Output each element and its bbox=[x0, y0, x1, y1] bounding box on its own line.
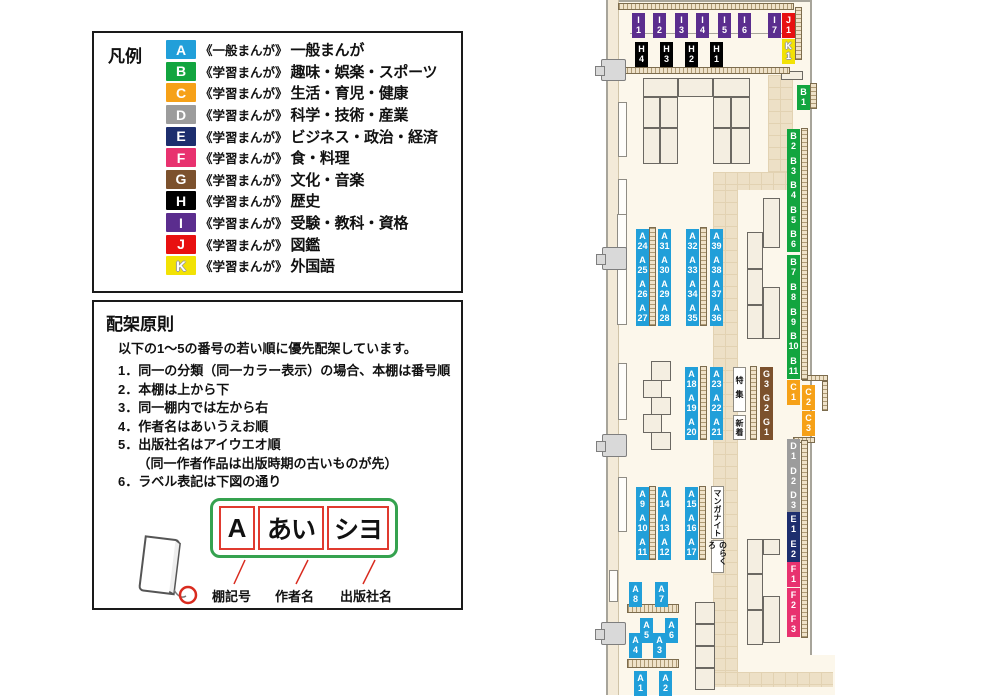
door-1 bbox=[602, 247, 627, 270]
legend-item-E: E《学習まんが》ビジネス・政治・経済 bbox=[166, 125, 438, 147]
shelf-label-H4: H4 bbox=[635, 42, 648, 67]
bench-3 bbox=[617, 268, 627, 325]
shelf-label-A26: A26 bbox=[636, 277, 649, 302]
shelf-strip-h-1 bbox=[618, 67, 790, 74]
shelf-label-A27: A27 bbox=[636, 301, 649, 326]
shelf-strip-v-10 bbox=[822, 381, 828, 411]
legend-series: 《学習まんが》 bbox=[200, 127, 288, 146]
area-note-4: のらくろ bbox=[711, 540, 724, 573]
shelf-label-B6: B6 bbox=[787, 227, 800, 252]
shelf-label-A36: A36 bbox=[710, 301, 723, 326]
shelf-label-A28: A28 bbox=[658, 301, 671, 326]
legend-item-A: A《一般まんが》一般まんが bbox=[166, 39, 438, 61]
legend-rows: A《一般まんが》一般まんがB《学習まんが》趣味・娯楽・スポーツC《学習まんが》生… bbox=[166, 39, 438, 277]
shelf-label-I5: I5 bbox=[718, 13, 731, 38]
shelf-label-A9: A9 bbox=[636, 487, 649, 512]
shelf-strip-h-3 bbox=[627, 659, 679, 668]
table-26 bbox=[695, 602, 715, 624]
shelf-label-A31: A31 bbox=[658, 229, 671, 254]
principle-item-4: 4．作者名はあいうえお順 bbox=[118, 418, 450, 437]
shelf-label-F3: F3 bbox=[787, 612, 800, 637]
tag-circle bbox=[180, 587, 196, 603]
legend-label: 受験・教科・資格 bbox=[291, 212, 409, 233]
shelf-strip-v-0 bbox=[649, 227, 656, 326]
shelf-label-B9: B9 bbox=[787, 305, 800, 330]
shelf-label-D3: D3 bbox=[787, 488, 800, 513]
table-3 bbox=[643, 97, 660, 128]
shelf-label-A32: A32 bbox=[686, 229, 699, 254]
bench-4 bbox=[618, 363, 627, 420]
principles-panel: 配架原則 以下の1～5の番号の若い順に優先配架しています。 1．同一の分類（同一… bbox=[92, 300, 463, 610]
caption-shelf-code: 棚記号 bbox=[212, 586, 251, 605]
door-0 bbox=[601, 59, 626, 81]
shelf-label-B7: B7 bbox=[787, 255, 800, 280]
shelf-label-D1: D1 bbox=[787, 439, 800, 464]
shelf-label-A15: A15 bbox=[685, 487, 698, 512]
shelf-label-F1: F1 bbox=[787, 562, 800, 587]
principles-list: 1．同一の分類（同一カラー表示）の場合、本棚は番号順2．本棚は上から下3．同一棚… bbox=[118, 362, 450, 492]
legend-item-J: J《学習まんが》図鑑 bbox=[166, 233, 438, 255]
shelf-label-B3: B3 bbox=[787, 154, 800, 179]
principle-item-1: 1．同一の分類（同一カラー表示）の場合、本棚は番号順 bbox=[118, 362, 450, 381]
door-2 bbox=[602, 434, 627, 457]
shelf-label-A24: A24 bbox=[636, 229, 649, 254]
table-22 bbox=[747, 574, 763, 610]
legend-chip-A: A bbox=[166, 40, 196, 59]
shelf-label-K1: K1 bbox=[782, 39, 795, 64]
legend-item-K: K《学習まんが》外国語 bbox=[166, 255, 438, 277]
shelf-label-A16: A16 bbox=[685, 511, 698, 536]
legend-chip-D: D bbox=[166, 105, 196, 124]
legend-item-C: C《学習まんが》生活・育児・健康 bbox=[166, 82, 438, 104]
legend-item-I: I《学習まんが》受験・教科・資格 bbox=[166, 212, 438, 234]
legend-label: ビジネス・政治・経済 bbox=[291, 126, 438, 147]
label-publisher: シヨ bbox=[327, 506, 389, 550]
table-6 bbox=[660, 128, 678, 164]
shelf-label-E2: E2 bbox=[787, 537, 800, 562]
legend-chip-C: C bbox=[166, 83, 196, 102]
shelf-label-A6: A6 bbox=[665, 618, 678, 643]
shelf-strip-v-3 bbox=[750, 366, 757, 440]
shelf-label-A25: A25 bbox=[636, 253, 649, 278]
legend-chip-H: H bbox=[166, 191, 196, 210]
table-21 bbox=[747, 539, 763, 574]
shelf-label-I2: I2 bbox=[653, 13, 666, 38]
legend-label: 趣味・娯楽・スポーツ bbox=[291, 61, 438, 82]
shelf-label-B8: B8 bbox=[787, 280, 800, 305]
bench-2 bbox=[617, 214, 627, 250]
shelf-label-A23: A23 bbox=[710, 367, 723, 392]
table-19 bbox=[643, 414, 662, 433]
walkway-3 bbox=[713, 672, 833, 687]
principles-intro: 以下の1～5の番号の若い順に優先配架しています。 bbox=[118, 338, 417, 357]
legend-series: 《学習まんが》 bbox=[200, 256, 288, 275]
shelf-label-A11: A11 bbox=[636, 535, 649, 560]
table-0 bbox=[643, 78, 678, 97]
table-8 bbox=[731, 97, 750, 128]
shelf-label-A17: A17 bbox=[685, 535, 698, 560]
area-note-2: 新着 bbox=[733, 415, 746, 440]
table-2 bbox=[713, 78, 750, 97]
legend-series: 《学習まんが》 bbox=[200, 235, 288, 254]
shelf-label-A29: A29 bbox=[658, 277, 671, 302]
legend-item-F: F《学習まんが》食・料理 bbox=[166, 147, 438, 169]
table-14 bbox=[747, 305, 763, 339]
shelf-label-G1: G1 bbox=[760, 415, 773, 440]
bench-0 bbox=[618, 102, 627, 157]
principle-item-2: 2．本棚は上から下 bbox=[118, 381, 450, 400]
legend-item-G: G《学習まんが》文化・音楽 bbox=[166, 169, 438, 191]
legend-series: 《学習まんが》 bbox=[200, 83, 288, 102]
shelf-label-A1: A1 bbox=[634, 671, 647, 696]
table-24 bbox=[763, 539, 780, 555]
legend-label: 科学・技術・産業 bbox=[291, 104, 409, 125]
shelf-label-G3: G3 bbox=[760, 367, 773, 392]
shelf-label-A10: A10 bbox=[636, 511, 649, 536]
table-1 bbox=[678, 78, 713, 97]
shelf-label-B4: B4 bbox=[787, 178, 800, 203]
shelf-label-A8: A8 bbox=[629, 582, 642, 607]
bench-5 bbox=[618, 477, 627, 532]
label-example-diagram: A あい シヨ 棚記号 作者名 出版社名 bbox=[112, 498, 452, 610]
table-5 bbox=[643, 128, 660, 164]
legend-chip-F: F bbox=[166, 148, 196, 167]
shelf-label-B2: B2 bbox=[787, 129, 800, 154]
table-4 bbox=[660, 97, 678, 128]
shelf-strip-v-6 bbox=[795, 7, 802, 60]
shelf-label-F2: F2 bbox=[787, 588, 800, 613]
door-3 bbox=[601, 622, 626, 645]
shelf-label-A19: A19 bbox=[685, 391, 698, 416]
shelf-label-I3: I3 bbox=[675, 13, 688, 38]
legend-label: 一般まんが bbox=[291, 39, 365, 60]
table-20 bbox=[651, 432, 671, 450]
legend-series: 《学習まんが》 bbox=[200, 170, 288, 189]
shelf-label-B5: B5 bbox=[787, 203, 800, 228]
legend-item-B: B《学習まんが》趣味・娯楽・スポーツ bbox=[166, 61, 438, 83]
shelf-strip-v-2 bbox=[700, 366, 707, 440]
shelf-label-B10: B10 bbox=[787, 329, 800, 354]
caption-publisher: 出版社名 bbox=[340, 586, 392, 605]
principle-item-6: （同一作者作品は出版時期の古いものが先） bbox=[118, 455, 450, 474]
table-10 bbox=[731, 128, 750, 164]
legend-label: 外国語 bbox=[291, 255, 335, 276]
shelf-label-I4: I4 bbox=[696, 13, 709, 38]
shelf-strip-v-8 bbox=[801, 128, 808, 380]
legend-label: 図鑑 bbox=[291, 234, 320, 255]
table-25 bbox=[763, 596, 780, 643]
shelf-label-C2: C2 bbox=[802, 385, 815, 410]
shelf-strip-v-7 bbox=[810, 83, 817, 109]
shelf-label-A30: A30 bbox=[658, 253, 671, 278]
principles-title: 配架原則 bbox=[106, 310, 174, 335]
legend-panel: 凡例 A《一般まんが》一般まんがB《学習まんが》趣味・娯楽・スポーツC《学習まん… bbox=[92, 31, 463, 293]
shelf-label-A38: A38 bbox=[710, 253, 723, 278]
legend-title: 凡例 bbox=[108, 42, 142, 67]
table-23 bbox=[747, 610, 763, 645]
legend-series: 《学習まんが》 bbox=[200, 62, 288, 81]
legend-chip-B: B bbox=[166, 62, 196, 81]
shelf-label-H1: H1 bbox=[710, 42, 723, 67]
legend-series: 《学習まんが》 bbox=[200, 191, 288, 210]
shelf-label-E1: E1 bbox=[787, 512, 800, 537]
legend-label: 生活・育児・健康 bbox=[291, 82, 409, 103]
shelf-label-A2: A2 bbox=[659, 671, 672, 696]
shelf-label-G2: G2 bbox=[760, 391, 773, 416]
table-27 bbox=[695, 624, 715, 646]
legend-chip-I: I bbox=[166, 213, 196, 232]
shelf-label-C1: C1 bbox=[787, 380, 800, 405]
table-13 bbox=[747, 269, 763, 305]
table-18 bbox=[651, 397, 671, 415]
principle-item-5: 5．出版社名はアイウエオ順 bbox=[118, 436, 450, 455]
shelf-label-C3: C3 bbox=[802, 411, 815, 436]
table-12 bbox=[747, 232, 763, 269]
shelf-label-A33: A33 bbox=[686, 253, 699, 278]
table-17 bbox=[643, 380, 662, 398]
legend-label: 歴史 bbox=[291, 190, 320, 211]
table-9 bbox=[713, 128, 731, 164]
shelf-label-I1: I1 bbox=[632, 13, 645, 38]
shelf-label-H3: H3 bbox=[660, 42, 673, 67]
bench-6 bbox=[609, 570, 618, 602]
shelf-label-I7: I7 bbox=[768, 13, 781, 38]
table-11 bbox=[763, 198, 780, 248]
legend-label: 食・料理 bbox=[291, 147, 350, 168]
principle-item-7: 6．ラベル表記は下図の通り bbox=[118, 473, 450, 492]
legend-item-H: H《学習まんが》歴史 bbox=[166, 190, 438, 212]
walkway-1 bbox=[713, 172, 793, 190]
shelf-strip-v-1 bbox=[700, 227, 707, 326]
legend-label: 文化・音楽 bbox=[291, 169, 365, 190]
legend-chip-K: K bbox=[166, 256, 196, 275]
legend-series: 《学習まんが》 bbox=[200, 105, 288, 124]
shelf-label-A39: A39 bbox=[710, 229, 723, 254]
table-29 bbox=[695, 668, 715, 690]
shelf-strip-h-0 bbox=[618, 3, 794, 10]
table-15 bbox=[763, 287, 780, 339]
legend-chip-G: G bbox=[166, 170, 196, 189]
shelf-label-A18: A18 bbox=[685, 367, 698, 392]
shelf-label-A12: A12 bbox=[658, 535, 671, 560]
shelf-label-H2: H2 bbox=[685, 42, 698, 67]
area-note-3: マンガナイト bbox=[711, 486, 724, 539]
shelf-strip-v-9 bbox=[801, 440, 808, 638]
legend-series: 《学習まんが》 bbox=[200, 148, 288, 167]
table-16 bbox=[651, 361, 671, 381]
shelf-label-A22: A22 bbox=[710, 391, 723, 416]
legend-chip-J: J bbox=[166, 235, 196, 254]
shelf-label-B11: B11 bbox=[787, 354, 800, 379]
shelf-strip-v-4 bbox=[649, 486, 656, 560]
shelf-strip-v-5 bbox=[699, 486, 706, 560]
shelf-label-A14: A14 bbox=[658, 487, 671, 512]
legend-chip-E: E bbox=[166, 127, 196, 146]
table-7 bbox=[713, 97, 731, 128]
shelf-label-D2: D2 bbox=[787, 464, 800, 489]
spine-label: A あい シヨ bbox=[210, 498, 398, 558]
area-note-1: 特集 bbox=[733, 367, 746, 412]
shelf-label-B1: B1 bbox=[797, 85, 810, 110]
shelf-label-A4: A4 bbox=[629, 633, 642, 658]
shelf-label-I6: I6 bbox=[738, 13, 751, 38]
caption-author: 作者名 bbox=[275, 586, 314, 605]
shelf-label-A35: A35 bbox=[686, 301, 699, 326]
shelf-label-A34: A34 bbox=[686, 277, 699, 302]
shelf-label-A37: A37 bbox=[710, 277, 723, 302]
shelf-label-A21: A21 bbox=[710, 415, 723, 440]
shelf-label-J1: J1 bbox=[782, 13, 795, 38]
shelf-label-A13: A13 bbox=[658, 511, 671, 536]
shelf-label-A7: A7 bbox=[655, 582, 668, 607]
legend-series: 《一般まんが》 bbox=[200, 40, 288, 59]
shelf-label-A20: A20 bbox=[685, 415, 698, 440]
shelf-label-A3: A3 bbox=[653, 633, 666, 658]
label-author: あい bbox=[258, 506, 324, 550]
table-28 bbox=[695, 646, 715, 668]
legend-series: 《学習まんが》 bbox=[200, 213, 288, 232]
principle-item-3: 3．同一棚内では左から右 bbox=[118, 399, 450, 418]
legend-item-D: D《学習まんが》科学・技術・産業 bbox=[166, 104, 438, 126]
label-shelf-code: A bbox=[219, 506, 255, 550]
